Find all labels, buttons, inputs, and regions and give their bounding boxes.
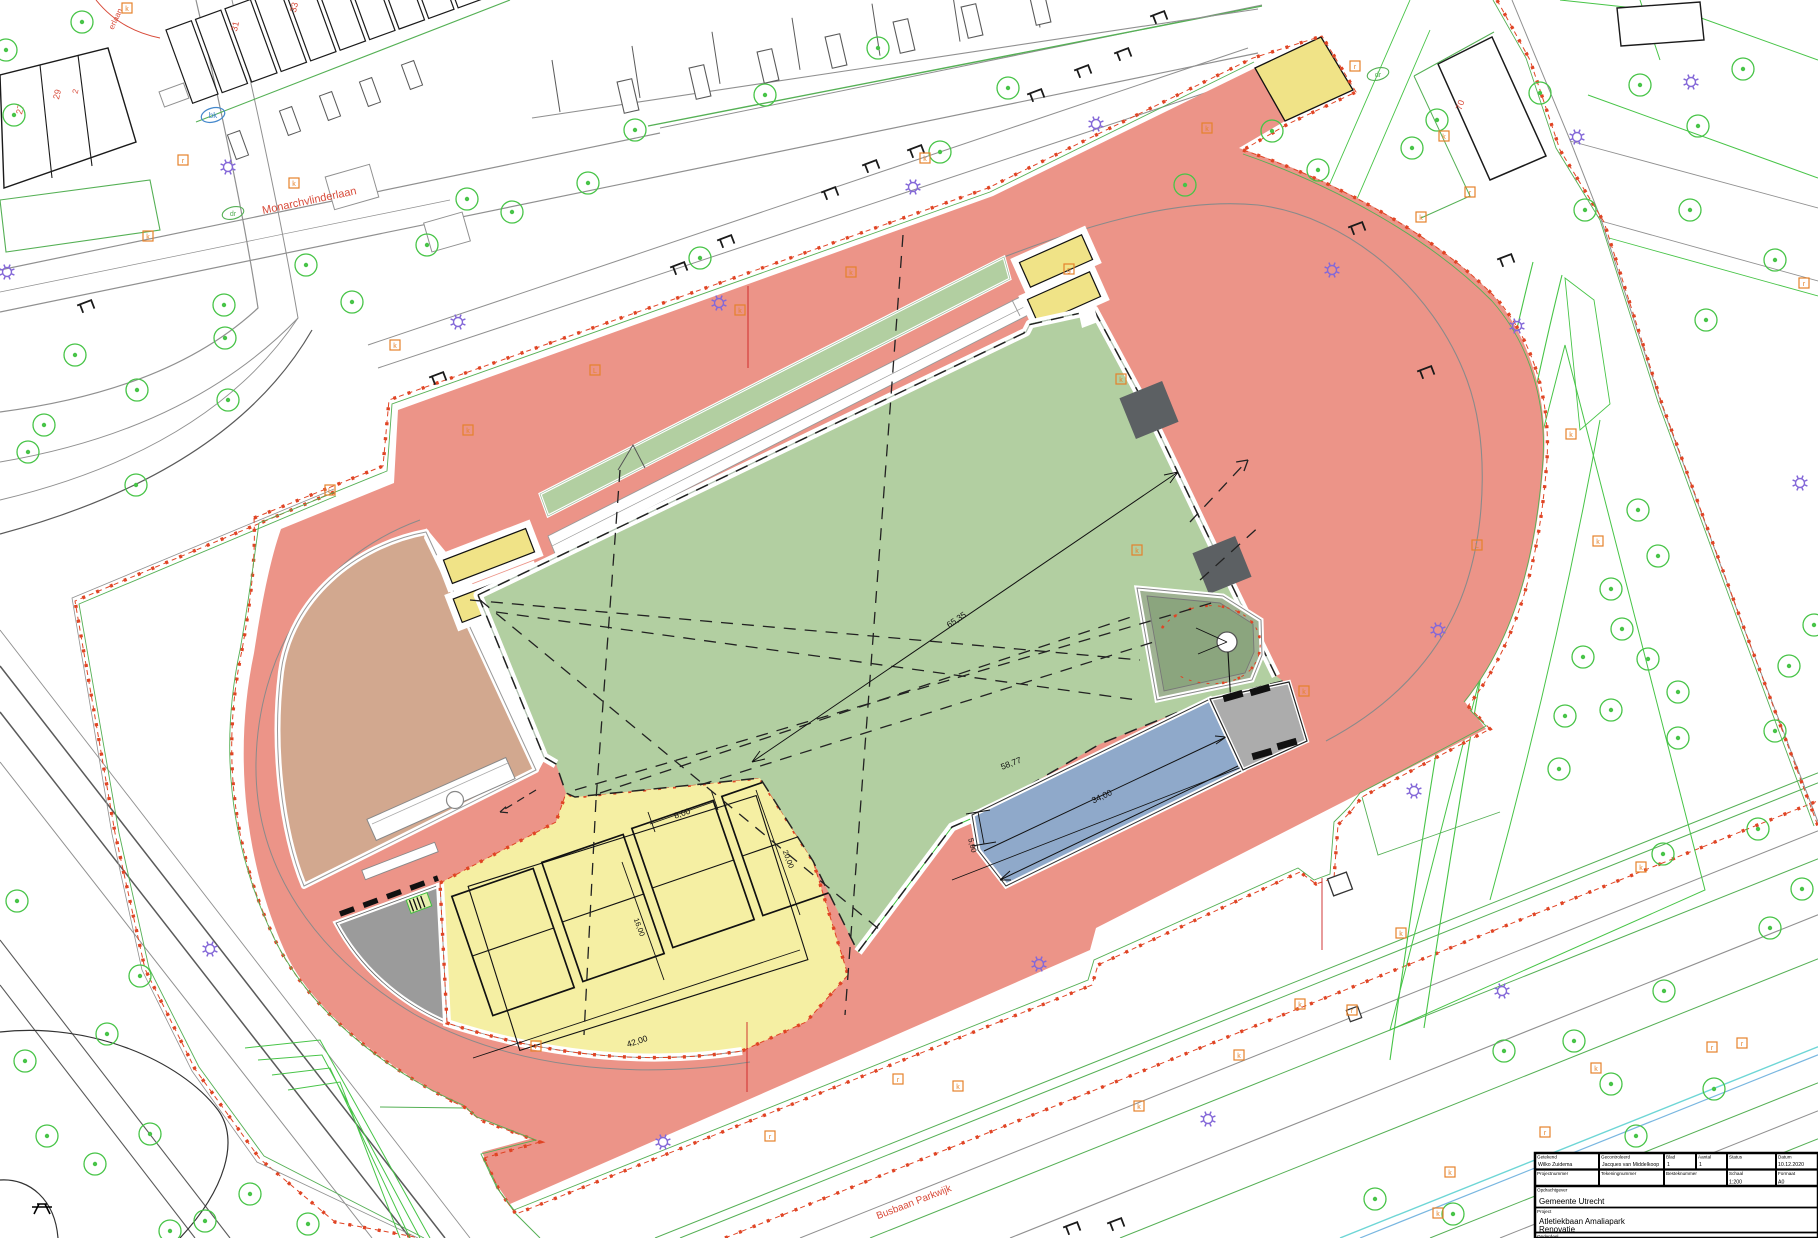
svg-text:Wilko Zuidema: Wilko Zuidema <box>1538 1162 1572 1168</box>
svg-text:k: k <box>1596 539 1600 546</box>
svg-text:k: k <box>956 1084 960 1091</box>
svg-text:k: k <box>849 270 853 277</box>
svg-text:Besteknummer: Besteknummer <box>1666 1171 1697 1176</box>
svg-text:k: k <box>125 6 129 13</box>
svg-text:10.12.2020: 10.12.2020 <box>1778 1162 1804 1168</box>
svg-text:k: k <box>1594 1066 1598 1073</box>
svg-text:k: k <box>393 343 397 350</box>
svg-text:Renovatie: Renovatie <box>1539 1225 1576 1234</box>
svg-text:bk: bk <box>209 111 218 120</box>
svg-text:L: L <box>593 368 597 375</box>
svg-text:dr: dr <box>230 211 237 218</box>
svg-text:k: k <box>738 308 742 315</box>
svg-text:Project: Project <box>1537 1209 1552 1214</box>
svg-text:L: L <box>1475 543 1479 550</box>
svg-text:k: k <box>923 156 927 163</box>
svg-text:g: g <box>1067 267 1071 274</box>
svg-text:Datum: Datum <box>1778 1155 1792 1160</box>
svg-text:Tekeningnummer: Tekeningnummer <box>1601 1171 1637 1176</box>
svg-text:1: 1 <box>1667 1162 1670 1168</box>
svg-text:1:200: 1:200 <box>1729 1180 1742 1186</box>
svg-text:k: k <box>146 234 150 241</box>
svg-text:Jacques van Middelkoop: Jacques van Middelkoop <box>1602 1162 1659 1168</box>
svg-text:Status: Status <box>1729 1155 1743 1160</box>
svg-text:k: k <box>1205 126 1209 133</box>
svg-text:Gemeente Utrecht: Gemeente Utrecht <box>1539 1197 1605 1206</box>
svg-text:k: k <box>1436 1211 1440 1218</box>
svg-text:A0: A0 <box>1778 1180 1784 1186</box>
svg-text:Schaal: Schaal <box>1729 1171 1743 1176</box>
svg-text:k: k <box>1442 134 1446 141</box>
svg-text:k: k <box>1237 1053 1241 1060</box>
svg-text:k: k <box>1302 689 1306 696</box>
svg-text:Aantal: Aantal <box>1698 1155 1711 1160</box>
svg-text:k: k <box>1137 1104 1141 1111</box>
svg-text:k: k <box>466 428 470 435</box>
svg-text:k: k <box>1119 377 1123 384</box>
svg-text:Projectnummer: Projectnummer <box>1537 1171 1569 1176</box>
svg-text:1: 1 <box>1699 1162 1702 1168</box>
svg-text:k: k <box>1298 1002 1302 1009</box>
svg-text:k: k <box>292 181 296 188</box>
svg-text:dr: dr <box>1375 72 1382 79</box>
svg-text:k: k <box>1135 548 1139 555</box>
svg-text:Opdrachtgever: Opdrachtgever <box>1537 1188 1568 1193</box>
svg-text:Formaat: Formaat <box>1778 1171 1796 1176</box>
svg-text:k: k <box>1399 931 1403 938</box>
svg-text:k: k <box>1419 215 1423 222</box>
svg-text:Getekend: Getekend <box>1537 1155 1557 1160</box>
svg-text:k: k <box>1569 432 1573 439</box>
svg-text:L: L <box>328 488 332 495</box>
svg-text:Blad: Blad <box>1666 1155 1676 1160</box>
svg-text:Onderdeel: Onderdeel <box>1537 1234 1558 1238</box>
svg-text:k: k <box>1448 1170 1452 1177</box>
svg-text:k: k <box>1639 865 1643 872</box>
svg-text:Gecontroleerd: Gecontroleerd <box>1601 1155 1631 1160</box>
